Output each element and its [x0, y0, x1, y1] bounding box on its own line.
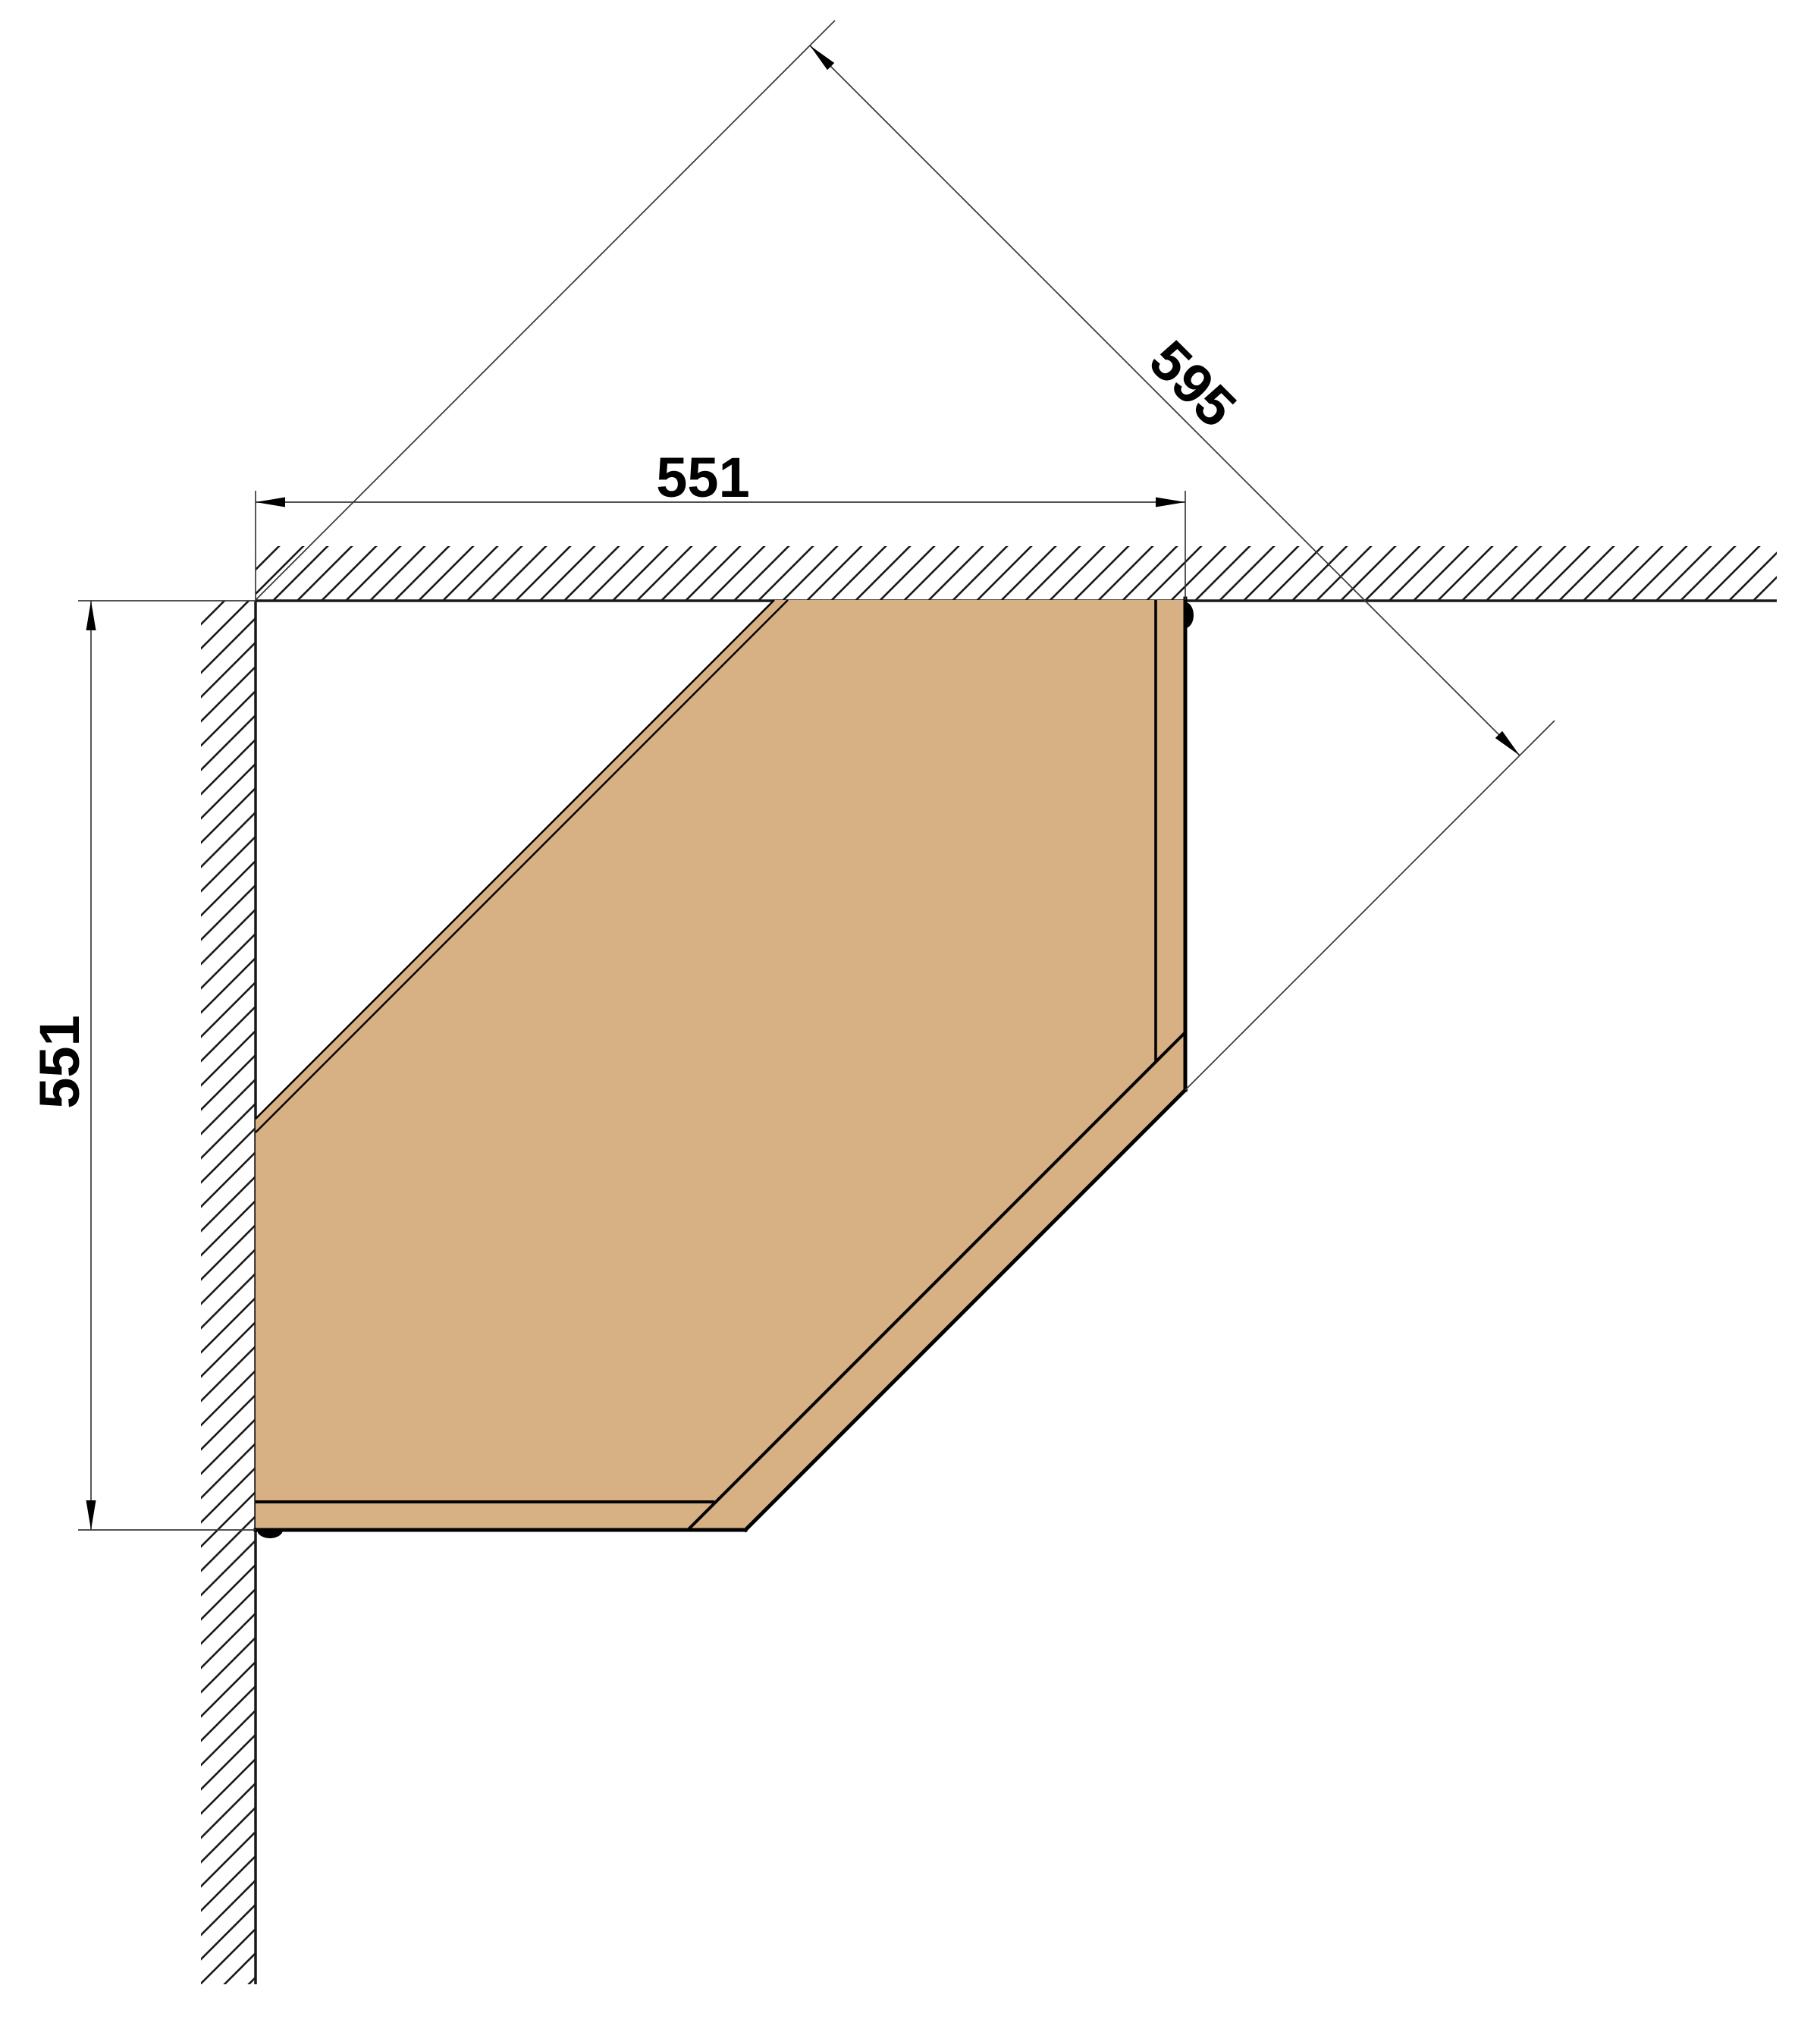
extension-line-from-door-front: [1185, 721, 1555, 1090]
dim-arrow-lower: [1495, 731, 1520, 755]
dim-arrow-right: [1156, 498, 1185, 507]
wall-top-hatch: [256, 546, 1777, 601]
drawing-page: 551 551 595: [0, 0, 1820, 2026]
dim-arrow-top: [86, 601, 96, 630]
extension-line-from-corner: [256, 20, 835, 600]
dim-arrow-left: [256, 498, 285, 507]
mounting-bracket-top-right: [1185, 602, 1194, 628]
mounting-bracket-bottom-left: [257, 1530, 283, 1538]
dim-label-left-depth: 551: [28, 1015, 91, 1108]
dim-label-diagonal: 595: [1137, 328, 1248, 439]
cabinet-body: [256, 600, 1185, 1530]
dim-arrow-upper: [810, 46, 834, 70]
corner-cabinet-technical-drawing: 551 551 595: [0, 0, 1820, 2026]
corner-cabinet: [256, 598, 1194, 1538]
wall-left-hatch: [201, 601, 256, 1984]
wall-top: [256, 546, 1777, 601]
dim-label-top-width: 551: [656, 446, 749, 509]
wall-left: [201, 601, 256, 1984]
dim-arrow-bottom: [86, 1500, 96, 1530]
